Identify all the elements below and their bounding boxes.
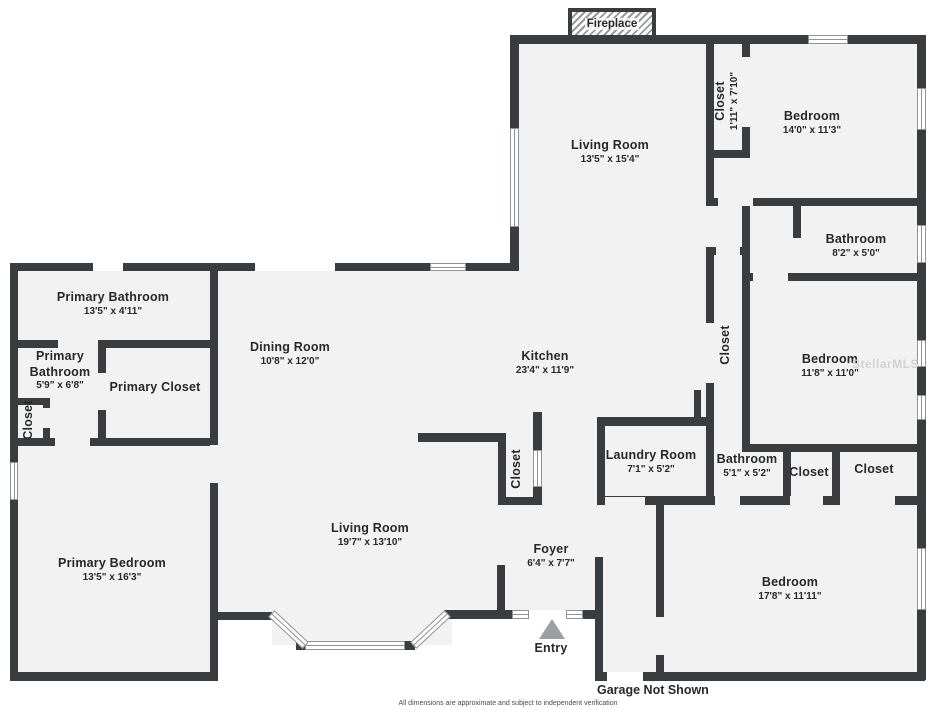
room-label-living-room-bottom: Living Room 19'7" x 13'10" xyxy=(331,521,409,549)
window xyxy=(512,610,529,619)
room-label-bedroom-top: Bedroom 14'0" x 11'3" xyxy=(783,109,841,137)
wall-segment xyxy=(583,610,601,619)
wall-segment xyxy=(43,398,50,408)
wall-segment xyxy=(10,438,218,446)
door-opening xyxy=(753,273,788,281)
window xyxy=(917,225,926,263)
wall-segment xyxy=(498,440,506,500)
room-label-laundry-room: Laundry Room 7'1" x 5'2" xyxy=(606,448,697,476)
wall-opening xyxy=(255,263,335,271)
wall-segment xyxy=(706,390,714,505)
room-dims: 1'11" x 7'10" xyxy=(729,72,742,130)
room-label-closet-left: Closet xyxy=(21,400,37,439)
wall-segment xyxy=(595,672,925,681)
room-label-primary-bedroom: Primary Bedroom 13'5" x 16'3" xyxy=(58,556,166,584)
room-dims: 19'7" x 13'10" xyxy=(331,537,409,550)
wall-segment xyxy=(706,150,750,158)
room-label-bedroom-mid: Bedroom 11'8" x 11'0" xyxy=(801,352,859,380)
wall-segment xyxy=(597,417,713,426)
garage-note: Garage Not Shown xyxy=(597,683,709,697)
window xyxy=(533,450,542,487)
room-name: Bedroom xyxy=(758,575,821,591)
wall-segment xyxy=(656,655,664,680)
room-name: Closet xyxy=(713,72,729,130)
room-name: Primary Closet xyxy=(109,380,200,396)
room-label-closet-2: Closet xyxy=(854,462,893,478)
room-name: Primary Bathroom xyxy=(17,349,103,380)
wall-segment xyxy=(694,390,701,418)
room-dims: 5'9" x 6'8" xyxy=(17,380,103,393)
room-name: Primary Bathroom xyxy=(57,290,169,306)
room-name: Primary Bedroom xyxy=(58,556,166,572)
door-opening xyxy=(58,340,98,348)
room-dims: 5'1" x 5'2" xyxy=(717,468,778,481)
wall-segment xyxy=(210,483,218,680)
room-label-closet-1: Closet xyxy=(789,465,828,481)
wall-segment xyxy=(793,206,801,238)
room-name: Foyer xyxy=(527,542,575,558)
room-dims: 13'5" x 16'3" xyxy=(58,572,166,585)
room-dims: 14'0" x 11'3" xyxy=(783,125,841,138)
window xyxy=(510,128,519,227)
room-dims: 13'5" x 15'4" xyxy=(571,154,649,167)
room-name: Laundry Room xyxy=(606,448,697,464)
room-name: Closet xyxy=(854,462,893,478)
floor-area xyxy=(706,198,925,452)
door-opening xyxy=(840,496,895,505)
wall-segment xyxy=(498,497,542,505)
room-name: Closet xyxy=(789,465,828,481)
room-name: Closet xyxy=(21,400,37,439)
wall-opening xyxy=(607,672,643,681)
wall-segment xyxy=(742,43,750,57)
room-name: Living Room xyxy=(571,138,649,154)
wall-segment xyxy=(742,206,750,452)
window xyxy=(917,395,926,420)
entry-arrow-icon xyxy=(539,619,565,639)
fireplace-label: Fireplace xyxy=(585,18,640,30)
room-dims: 23'4" x 11'9" xyxy=(516,365,574,378)
room-label-bathroom-small: Bathroom 5'1" x 5'2" xyxy=(717,452,778,480)
window xyxy=(917,88,926,130)
wall-segment xyxy=(497,565,505,612)
door-opening xyxy=(55,438,90,446)
room-name: Living Room xyxy=(331,521,409,537)
room-label-closet-top: Closet 1'11" x 7'10" xyxy=(713,72,741,130)
room-label-primary-bathroom: Primary Bathroom 13'5" x 4'11" xyxy=(57,290,169,318)
floor-area xyxy=(10,263,218,680)
floor-plan: Fireplace Living Room 13'5" x 15'4" Clos… xyxy=(0,0,933,720)
room-dims: 11'8" x 11'0" xyxy=(801,368,859,381)
wall-segment xyxy=(597,417,605,505)
watermark: StellarMLS xyxy=(852,357,919,371)
wall-segment xyxy=(43,428,50,445)
room-name: Closet xyxy=(718,325,734,364)
room-dims: 10'8" x 12'0" xyxy=(250,356,330,369)
room-label-dining-room: Dining Room 10'8" x 12'0" xyxy=(250,340,330,368)
room-label-closet-hall: Closet xyxy=(718,325,734,364)
door-opening xyxy=(790,496,823,505)
wall-segment xyxy=(706,255,714,323)
room-label-primary-bathroom-2: Primary Bathroom 5'9" x 6'8" xyxy=(17,349,103,393)
room-name: Bedroom xyxy=(783,109,841,125)
door-opening xyxy=(716,247,740,255)
wall-segment xyxy=(418,433,506,442)
room-label-bedroom-bottom: Bedroom 17'8" x 11'11" xyxy=(758,575,821,603)
wall-opening xyxy=(93,263,123,271)
wall-segment xyxy=(210,612,272,620)
disclaimer-text: All dimensions are approximate and subje… xyxy=(377,700,639,707)
room-label-bathroom-right: Bathroom 8'2" x 5'0" xyxy=(826,232,887,260)
room-name: Entry xyxy=(535,641,568,657)
room-name: Dining Room xyxy=(250,340,330,356)
room-name: Bedroom xyxy=(801,352,859,368)
room-dims: 8'2" x 5'0" xyxy=(826,248,887,261)
door-opening xyxy=(210,445,218,483)
wall-segment xyxy=(510,44,519,128)
room-dims: 7'1" x 5'2" xyxy=(606,464,697,477)
room-name: Bathroom xyxy=(717,452,778,468)
room-name: Closet xyxy=(509,449,525,488)
window xyxy=(430,263,466,271)
wall-segment xyxy=(444,610,513,619)
room-dims: 13'5" x 4'11" xyxy=(57,306,169,319)
door-opening xyxy=(715,496,740,505)
room-label-kitchen: Kitchen 23'4" x 11'9" xyxy=(516,349,574,377)
door-opening xyxy=(605,497,645,505)
wall-segment xyxy=(10,672,218,681)
room-label-closet-kitchen: Closet xyxy=(509,449,525,488)
wall-segment xyxy=(656,505,664,617)
entry-label: Entry xyxy=(535,641,568,657)
room-label-living-room-top: Living Room 13'5" x 15'4" xyxy=(571,138,649,166)
room-name: Bathroom xyxy=(826,232,887,248)
room-label-primary-closet: Primary Closet xyxy=(109,380,200,396)
wall-segment xyxy=(10,340,210,348)
room-name: Kitchen xyxy=(516,349,574,365)
wall-segment xyxy=(210,263,218,445)
window xyxy=(917,548,926,610)
room-label-foyer: Foyer 6'4" x 7'7" xyxy=(527,542,575,570)
room-dims: 6'4" x 7'7" xyxy=(527,558,575,571)
window xyxy=(305,641,405,650)
door-opening xyxy=(718,198,753,206)
wall-segment xyxy=(510,35,925,44)
window xyxy=(808,35,848,44)
window xyxy=(10,462,18,500)
wall-opening xyxy=(529,610,566,619)
door-opening xyxy=(656,617,664,655)
window xyxy=(566,610,583,619)
room-dims: 17'8" x 11'11" xyxy=(758,591,821,604)
